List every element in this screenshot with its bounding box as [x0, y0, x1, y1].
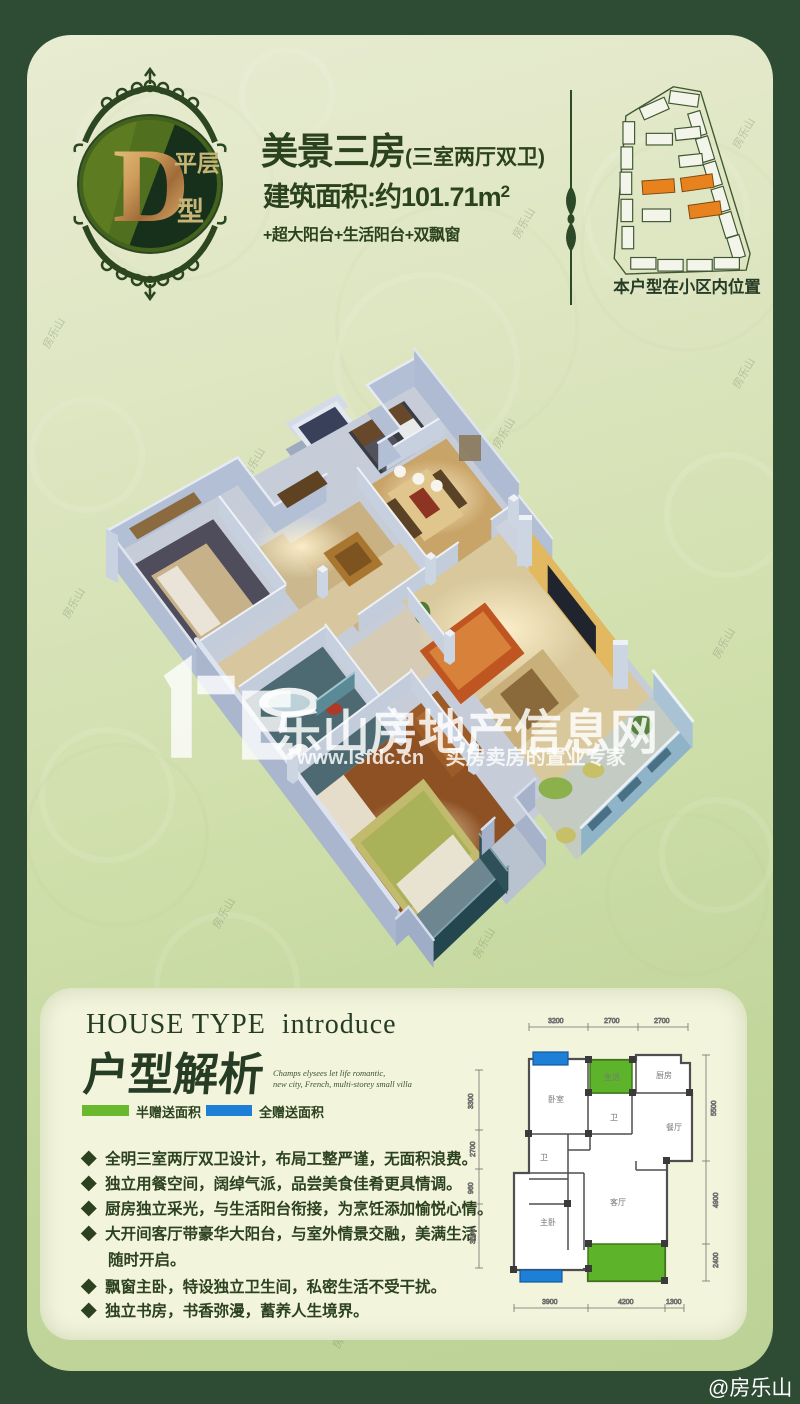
- svg-text:3300: 3300: [468, 1093, 475, 1109]
- svg-text:1300: 1300: [666, 1299, 682, 1306]
- svg-text:2700: 2700: [654, 1018, 670, 1025]
- svg-text:卫: 卫: [540, 1153, 548, 1162]
- svg-text:960: 960: [468, 1182, 475, 1194]
- svg-text:厨房: 厨房: [656, 1070, 672, 1080]
- svg-text:2700: 2700: [604, 1018, 620, 1025]
- svg-text:餐厅: 餐厅: [666, 1123, 682, 1132]
- svg-text:卧室: 卧室: [548, 1094, 564, 1104]
- svg-text:3200: 3200: [548, 1018, 564, 1025]
- svg-text:3600: 3600: [470, 1228, 477, 1244]
- svg-text:2700: 2700: [470, 1141, 477, 1157]
- svg-text:4200: 4200: [618, 1299, 634, 1306]
- svg-text:主卧: 主卧: [540, 1217, 556, 1227]
- svg-text:5500: 5500: [711, 1100, 718, 1116]
- svg-text:4900: 4900: [713, 1192, 720, 1208]
- svg-text:3900: 3900: [542, 1299, 558, 1306]
- svg-text:卫: 卫: [610, 1113, 618, 1122]
- svg-text:客厅: 客厅: [610, 1197, 626, 1207]
- svg-text:生活: 生活: [604, 1072, 620, 1082]
- svg-text:2400: 2400: [713, 1252, 720, 1268]
